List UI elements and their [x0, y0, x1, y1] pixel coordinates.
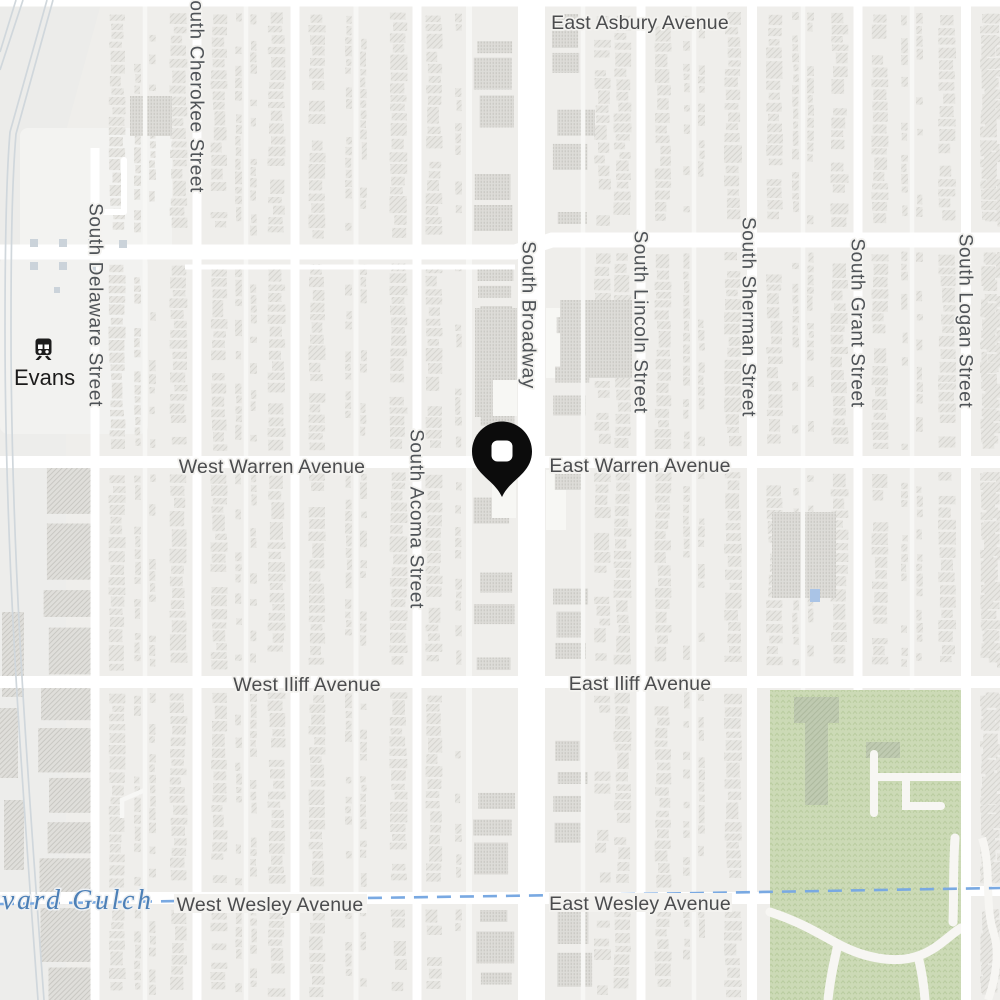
svg-text:Harvard Gulch: Harvard Gulch [0, 885, 154, 916]
svg-text:East Warren Avenue: East Warren Avenue [549, 455, 730, 477]
svg-text:South Sherman Street: South Sherman Street [738, 217, 759, 417]
svg-text:South Logan Street: South Logan Street [955, 234, 976, 409]
svg-text:East Iliff Avenue: East Iliff Avenue [569, 673, 712, 695]
svg-text:Evans: Evans [14, 365, 75, 390]
svg-text:South Delaware Street: South Delaware Street [85, 203, 106, 407]
svg-text:South Broadway: South Broadway [518, 241, 539, 389]
svg-text:South Grant Street: South Grant Street [847, 238, 868, 407]
svg-text:South Acoma Street: South Acoma Street [406, 429, 427, 609]
svg-text:West Wesley Avenue: West Wesley Avenue [177, 894, 364, 916]
svg-text:East Asbury Avenue: East Asbury Avenue [551, 12, 729, 34]
svg-text:South Cherokee Street: South Cherokee Street [186, 0, 207, 193]
svg-text:South Lincoln Street: South Lincoln Street [630, 230, 651, 413]
svg-text:East Wesley Avenue: East Wesley Avenue [549, 893, 731, 915]
svg-text:West Iliff Avenue: West Iliff Avenue [233, 674, 381, 696]
svg-text:West Warren Avenue: West Warren Avenue [179, 456, 365, 478]
